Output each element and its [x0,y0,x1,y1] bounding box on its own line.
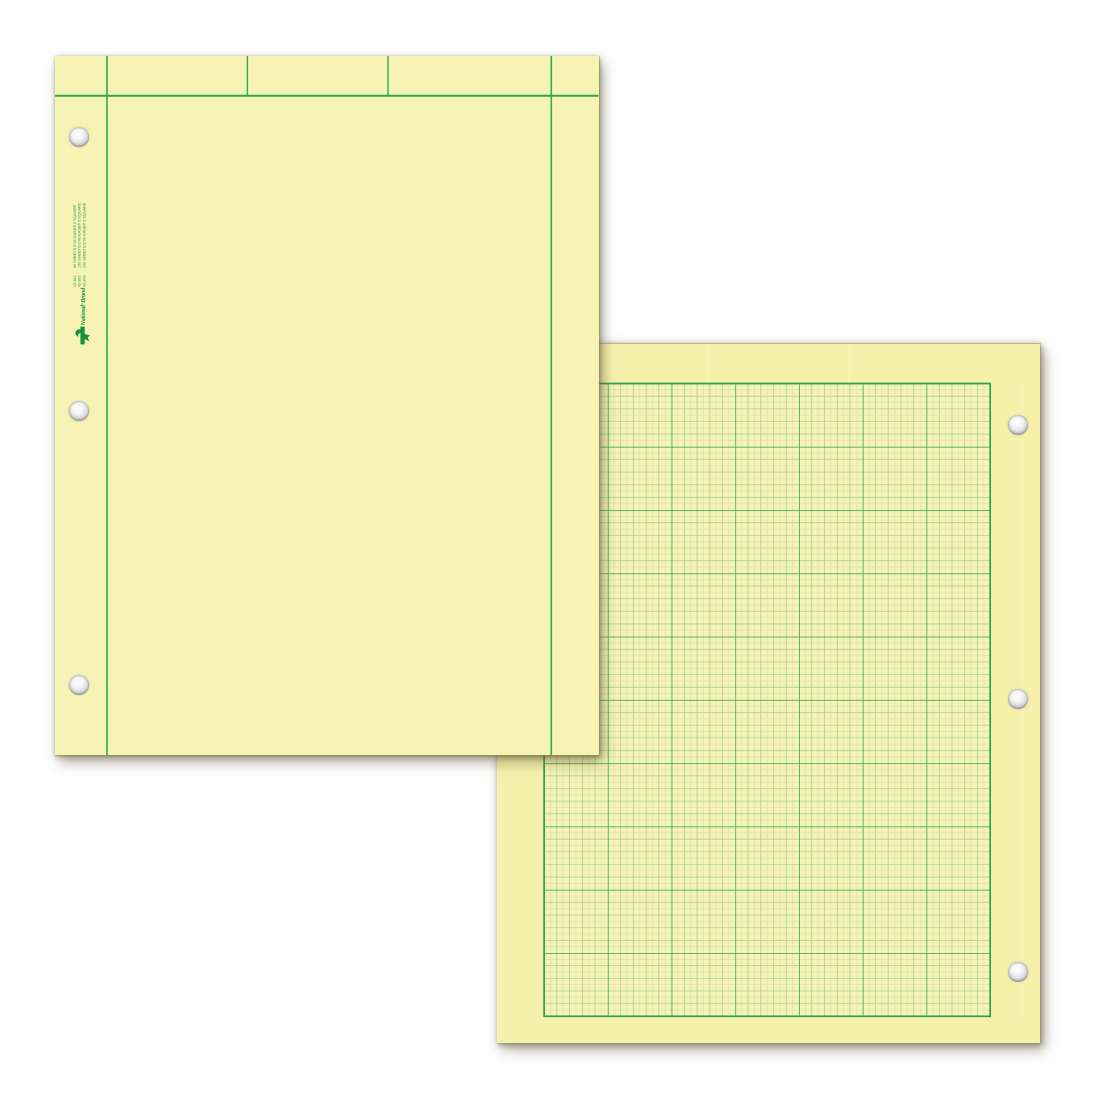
svg-text:50 SHEETS EYE-EASE® 5 SQUARE: 50 SHEETS EYE-EASE® 5 SQUARE [73,204,77,268]
svg-text:100 SHEETS EYE-EASE® 5 SQUARE: 100 SHEETS EYE-EASE® 5 SQUARE [78,202,82,268]
svg-text:42-381: 42-381 [73,275,77,287]
svg-text:200 SHEETS EYE-EASE® 5 SQUARE: 200 SHEETS EYE-EASE® 5 SQUARE [83,202,87,268]
svg-text:42-382: 42-382 [78,275,82,287]
svg-text:National®Brand: National®Brand [80,287,88,327]
svg-text:42-389: 42-389 [83,275,87,287]
